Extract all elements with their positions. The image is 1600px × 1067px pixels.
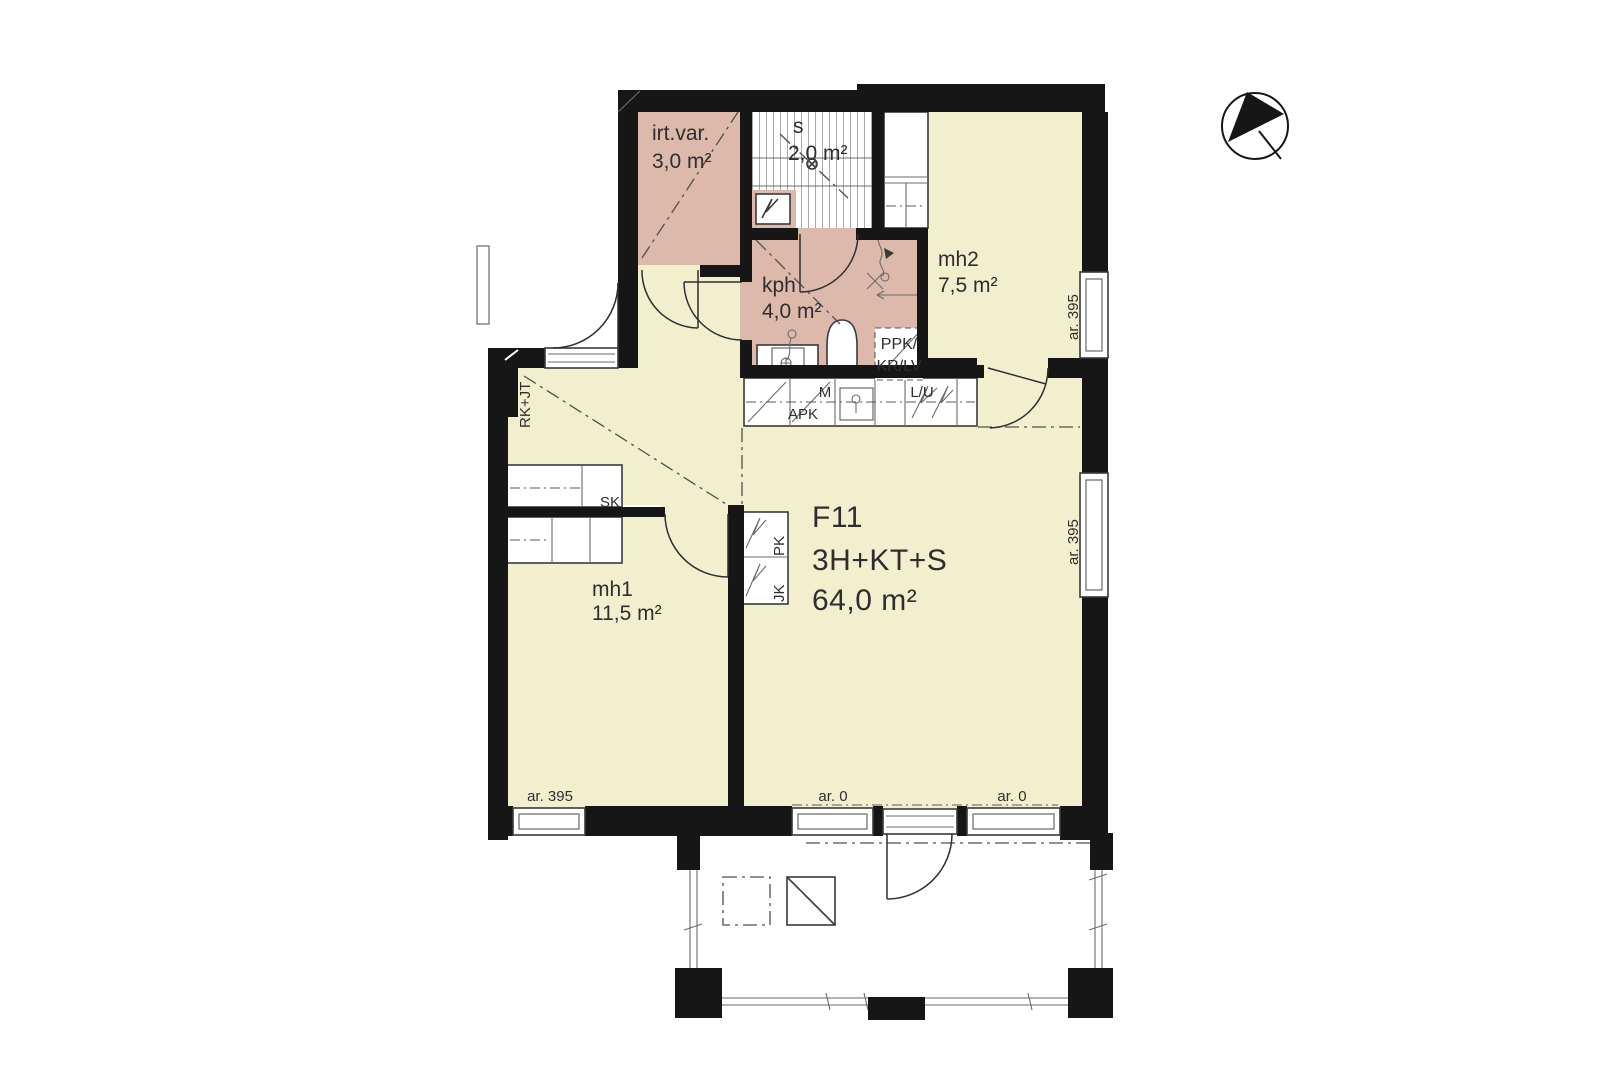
wall-segment	[740, 240, 752, 282]
glazing-joint-ticks	[684, 874, 1107, 1010]
wall-segment	[857, 84, 1105, 92]
wall-segment	[957, 806, 967, 836]
balcony-reservation-box	[723, 877, 770, 925]
door-opening-mh1	[660, 505, 728, 517]
window-mh2	[1080, 272, 1108, 358]
room-label-mh2: mh2	[938, 248, 979, 271]
floor-plan-drawing: irt.var. 3,0 m² s 2,0 m² kph 4,0 m² mh2 …	[0, 0, 1600, 1067]
balcony-glazing	[684, 870, 1107, 1010]
balcony-post	[868, 997, 925, 1020]
label-stove-oven: L/U	[910, 384, 933, 401]
sauna-stove-icon	[756, 194, 790, 224]
room-area-irtvar: 3,0 m²	[652, 150, 712, 173]
wall-segment	[1048, 358, 1082, 378]
dim-ar0-living-right-window: ar. 0	[997, 788, 1026, 805]
wall-segment	[728, 505, 744, 808]
wall-segment	[618, 112, 638, 368]
window-living	[1080, 473, 1108, 597]
room-label-mh1: mh1	[592, 578, 633, 601]
electrical-cabinet	[490, 353, 518, 417]
dim-ar395-living-window: ar. 395	[1065, 519, 1082, 565]
wall-segment	[872, 112, 884, 228]
apartment-type: 3H+KT+S	[812, 544, 947, 577]
balcony-door	[883, 809, 957, 899]
kitchen-counter	[744, 378, 977, 426]
label-electrical-cabinet: RK+JT	[517, 382, 534, 428]
balcony-hatch-diagonal	[787, 877, 835, 925]
label-freezer: PK	[771, 536, 788, 556]
room-label-irtvar: irt.var.	[652, 122, 709, 145]
label-microwave: M	[819, 384, 832, 401]
wall-segment	[488, 507, 665, 517]
wall-segment	[1082, 597, 1108, 840]
room-mh2-floor	[928, 112, 1083, 358]
window-living-left	[792, 808, 873, 835]
room-label-kph: kph	[762, 274, 796, 297]
label-laundry-2: KR/LV	[876, 358, 921, 375]
floor-plan-sheet: irt.var. 3,0 m² s 2,0 m² kph 4,0 m² mh2 …	[0, 0, 1600, 1067]
apartment-area: 64,0 m²	[812, 584, 917, 617]
north-arrow	[1222, 92, 1288, 159]
dim-ar395-mh2-window: ar. 395	[1065, 294, 1082, 340]
wall-segment	[618, 90, 1105, 112]
wall-segment	[856, 228, 928, 240]
entrance-door	[545, 283, 618, 368]
apartment-code: F11	[812, 501, 863, 534]
wall-segment	[1082, 358, 1108, 473]
wall-segment	[917, 240, 928, 365]
wall-segment	[585, 806, 792, 836]
label-dishwasher: APK	[788, 406, 818, 423]
balcony	[675, 833, 1113, 1020]
door-swing-arc	[887, 834, 952, 899]
window-living-right	[967, 808, 1060, 835]
balcony-post	[1090, 833, 1113, 870]
wall-segment	[700, 265, 740, 277]
dim-ar0-living-left-window: ar. 0	[818, 788, 847, 805]
wall-segment	[928, 358, 977, 378]
room-area-mh1: 11,5 m²	[592, 602, 662, 625]
room-area-kph: 4,0 m²	[762, 300, 822, 323]
wall-segment	[1082, 112, 1108, 272]
wall-segment	[740, 228, 798, 240]
door-opening-sauna	[798, 228, 856, 240]
label-closet-sk: SK	[600, 494, 620, 511]
balcony-post	[677, 833, 700, 870]
room-area-sauna: 2,0 m²	[788, 142, 848, 165]
window-mh1	[513, 808, 585, 835]
door-opening-kph	[740, 282, 752, 340]
corridor-niche	[477, 246, 489, 324]
wall-segment	[488, 368, 508, 840]
sauna-area	[752, 112, 872, 228]
balcony-post	[1068, 968, 1113, 1018]
dim-ar395-mh1-window: ar. 395	[527, 788, 573, 805]
wall-segment	[873, 806, 883, 836]
room-label-sauna: s	[793, 115, 804, 138]
label-laundry-1: PPK/	[881, 336, 918, 353]
room-area-mh2: 7,5 m²	[938, 274, 998, 297]
door-swing-arc	[553, 283, 618, 348]
label-fridge: JK	[771, 584, 788, 602]
balcony-post	[675, 968, 722, 1018]
wall-segment	[488, 806, 513, 836]
